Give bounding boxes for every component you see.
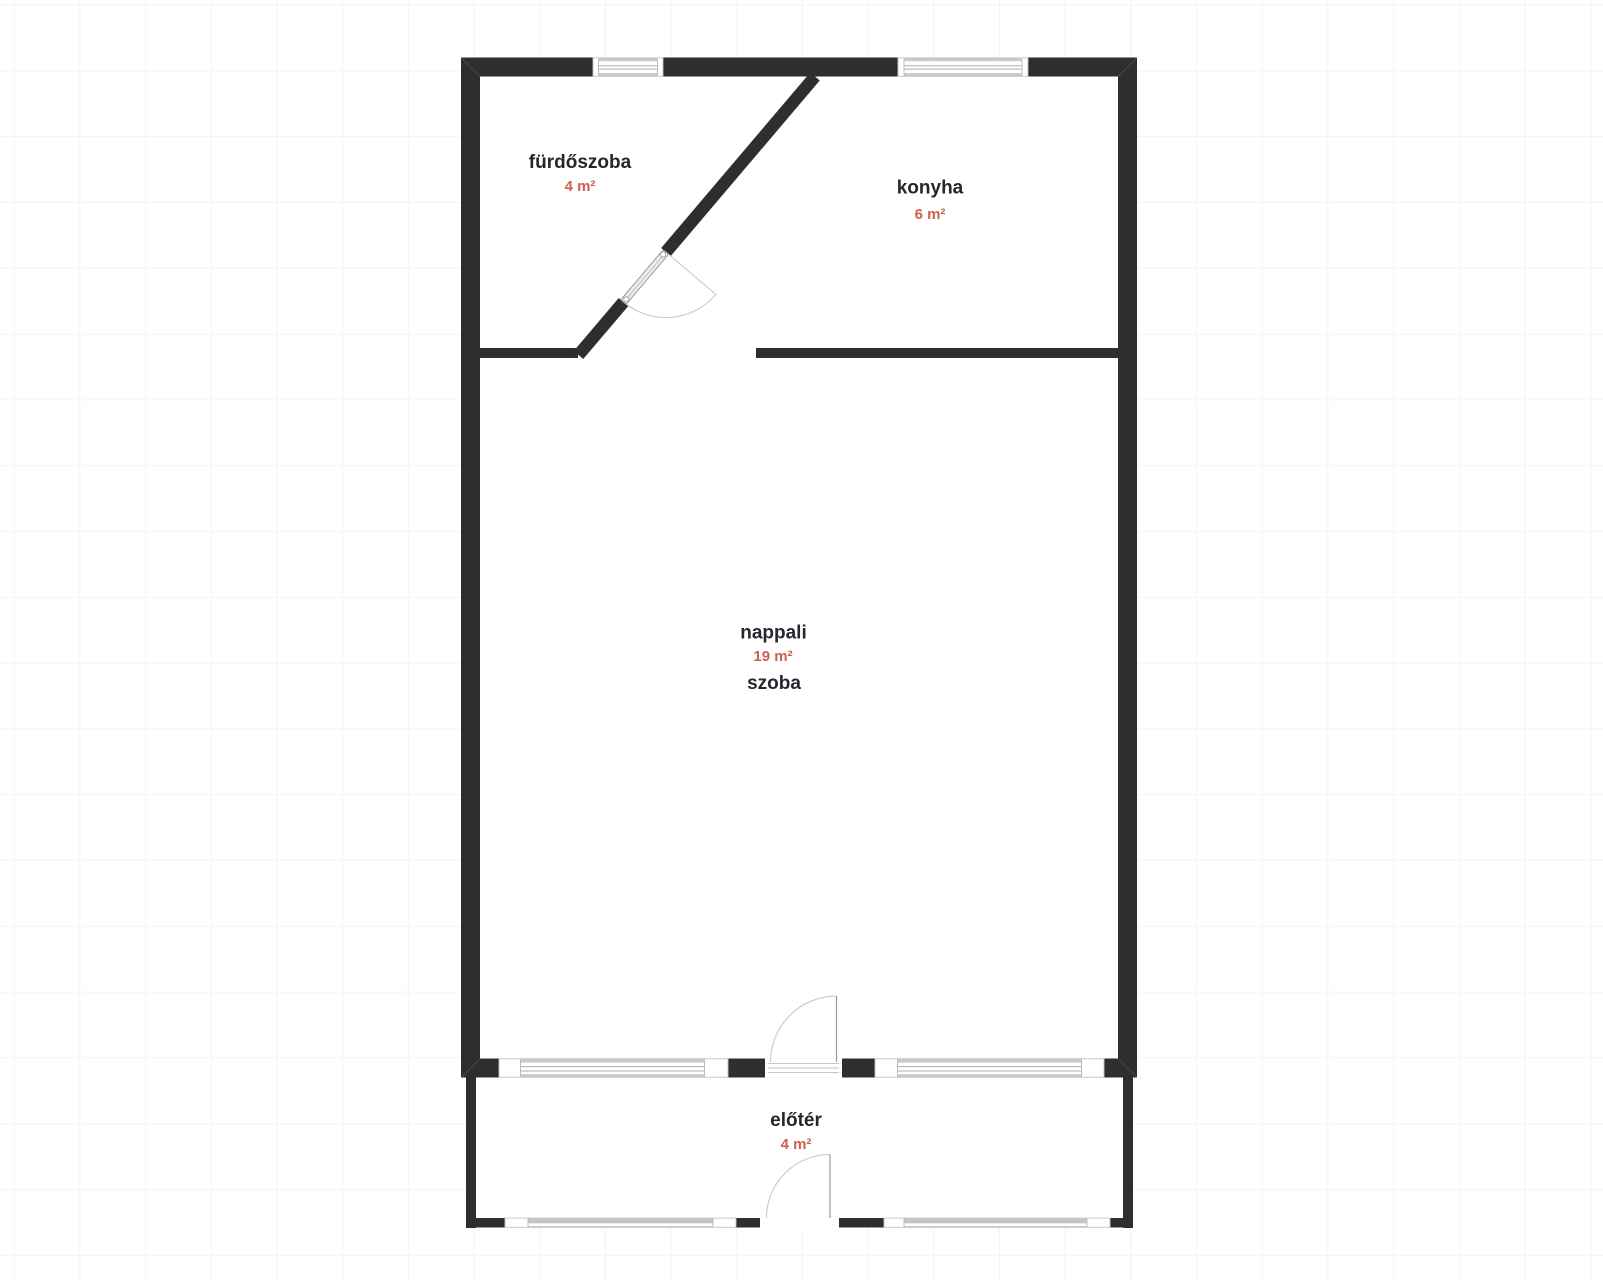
- svg-text:fürdőszoba: fürdőszoba: [529, 152, 632, 173]
- svg-text:szoba: szoba: [747, 673, 801, 694]
- svg-text:konyha: konyha: [897, 178, 964, 199]
- svg-text:19 m²: 19 m²: [753, 648, 792, 665]
- svg-text:4 m²: 4 m²: [565, 178, 596, 195]
- svg-text:nappali: nappali: [740, 623, 807, 644]
- svg-text:4 m²: 4 m²: [781, 1136, 812, 1153]
- svg-text:6 m²: 6 m²: [915, 206, 946, 223]
- svg-text:előtér: előtér: [770, 1110, 822, 1131]
